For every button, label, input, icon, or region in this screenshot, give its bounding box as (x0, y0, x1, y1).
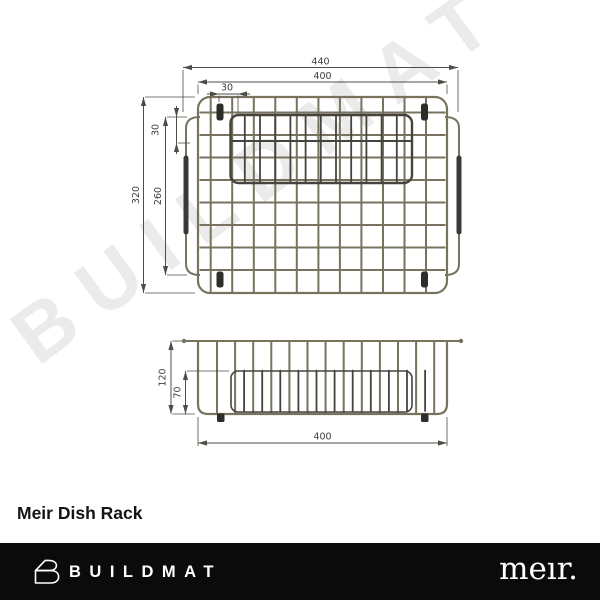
top-view-grid-vertical-wires (211, 98, 426, 292)
buildmat-wordmark: BUILDMAT (69, 561, 222, 582)
dim-side-inner-height: 70 (173, 371, 230, 414)
top-view-inner-basket-wires (245, 116, 397, 182)
buildmat-icon (31, 557, 61, 587)
dimension-drawing: 440 400 30 320 (0, 0, 600, 475)
top-view-grid-horizontal-wires (200, 113, 446, 271)
footer-bar: BUILDMAT meır. (0, 543, 600, 600)
side-view-inner-basket (231, 371, 412, 412)
dim-side-height: 120 (158, 341, 196, 414)
buildmat-logo: BUILDMAT (31, 557, 222, 587)
dim-label-400-bottom: 400 (313, 432, 331, 443)
side-view: 120 70 400 (158, 339, 464, 446)
dim-offset-side: 30 (151, 106, 191, 154)
left-handle-tip (182, 339, 186, 343)
dim-label-30-side: 30 (151, 124, 162, 136)
top-view-outer-frame (198, 97, 447, 293)
dim-label-30-top: 30 (221, 83, 233, 94)
product-title: Meir Dish Rack (17, 503, 142, 524)
side-view-long-wires (217, 342, 434, 413)
dim-label-440: 440 (311, 57, 329, 68)
dim-label-320: 320 (131, 186, 142, 204)
page: BUILDMAT (0, 0, 600, 600)
dim-label-400-top: 400 (313, 71, 331, 82)
dim-inner-width: 400 (198, 71, 447, 94)
dim-inner-height: 260 (153, 117, 187, 275)
dim-side-width: 400 (198, 417, 447, 446)
meir-logo: meır. (499, 554, 578, 589)
dim-label-120: 120 (158, 368, 169, 386)
top-view: 440 400 30 320 (131, 57, 459, 294)
dim-label-70: 70 (173, 386, 184, 398)
dim-label-260: 260 (153, 187, 164, 205)
right-handle-tip (459, 339, 463, 343)
